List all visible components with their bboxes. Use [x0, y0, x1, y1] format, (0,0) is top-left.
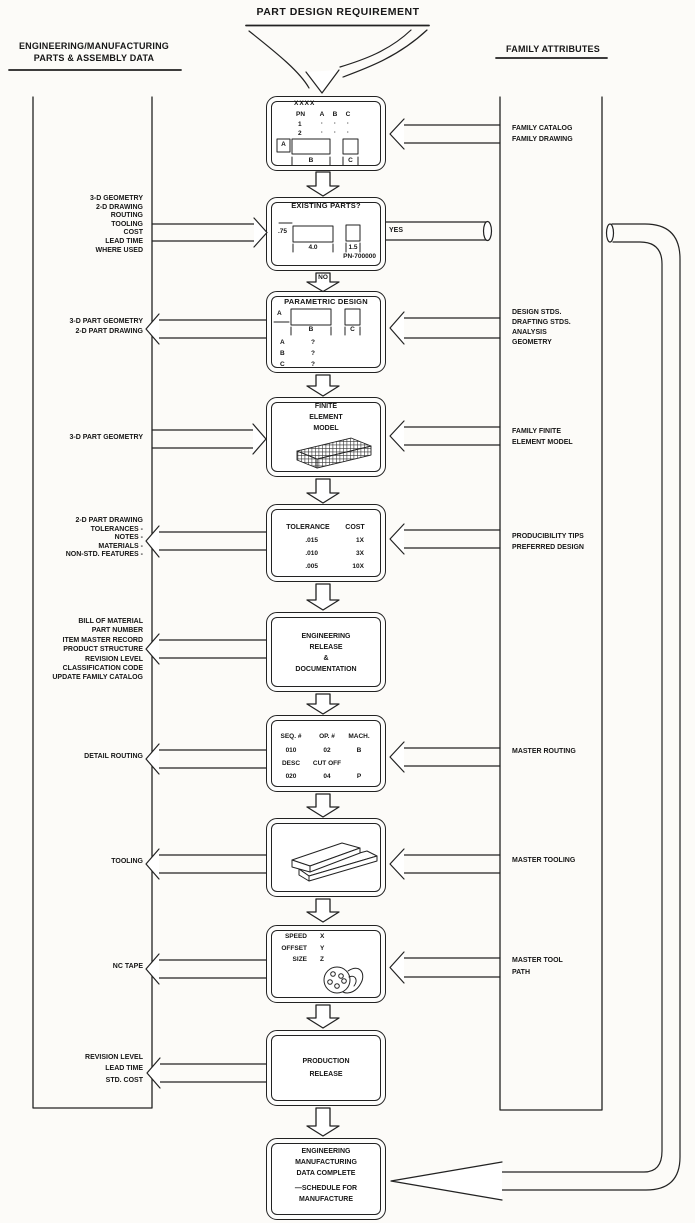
label-line: BILL OF MATERIAL: [33, 617, 143, 626]
routing-cell: 010: [272, 747, 310, 754]
arrow-left-icon: [390, 421, 404, 451]
label-line: FAMILY FINITE: [512, 427, 602, 438]
yes-feedback-loop: [386, 222, 680, 1201]
label-line: WHERE USED: [33, 247, 143, 256]
label-line: ANALYSIS: [512, 328, 602, 338]
arrow-left-icon: [147, 1058, 160, 1088]
label-line: 2-D PART DRAWING: [33, 327, 143, 337]
fem-line: ELEMENT: [266, 414, 386, 422]
label-line: PRODUCT STRUCTURE: [33, 645, 143, 654]
label-line: MASTER ROUTING: [512, 748, 602, 755]
down-arrow-icon: [307, 694, 339, 714]
label-line: DRAFTING STDS.: [512, 318, 602, 328]
flowchart-canvas: PART DESIGN REQUIREMENT ENGINEERING/MANU…: [0, 0, 695, 1223]
label-line: DETAIL ROUTING: [33, 753, 143, 760]
label-line: DESIGN STDS.: [512, 308, 602, 318]
catalog-col-pn: PN: [296, 111, 305, 118]
diagram-line-art: [0, 0, 695, 1223]
arrow-left-icon: [390, 312, 404, 344]
label-line: NOTES -: [33, 534, 143, 543]
cost-value: 1X: [338, 537, 364, 544]
dim-label-c: C: [345, 326, 360, 333]
arrow-right-icon: [254, 218, 267, 247]
eng-release-line: RELEASE: [266, 644, 386, 652]
label-line: ITEM MASTER RECORD: [33, 636, 143, 645]
label-line: STD. COST: [33, 1075, 143, 1086]
dim-label-a: A: [277, 310, 282, 317]
label-line: MATERIALS -: [33, 543, 143, 552]
tolerance-header: TOLERANCE: [278, 524, 338, 532]
down-arrow-icon: [307, 899, 339, 922]
label-line: CLASSIFICATION CODE: [33, 664, 143, 673]
label-line: LEAD TIME: [33, 238, 143, 247]
cost-header: COST: [340, 524, 370, 532]
label-line: 2-D DRAWING: [33, 204, 143, 213]
nc-param-label: SIZE: [267, 956, 307, 963]
label-line: COST: [33, 229, 143, 238]
label-line: MASTER TOOL: [512, 955, 602, 967]
label-line: PART NUMBER: [33, 626, 143, 635]
catalog-dim-b: B: [303, 157, 319, 164]
catalog-col-c: C: [343, 111, 353, 118]
catalog-row-cell: 2: [298, 130, 302, 137]
nc-param-label: SPEED: [267, 933, 307, 940]
tooling-drawing: [292, 843, 377, 881]
arrow-right-icon: [253, 424, 266, 454]
catalog-row-cell: ·: [343, 129, 353, 136]
part-design-funnel-arrow: [249, 30, 427, 93]
yes-branch-label: YES: [389, 227, 403, 235]
label-line: TOOLING: [33, 221, 143, 230]
no-branch-label: NO: [314, 274, 332, 281]
label-line: PATH: [512, 967, 602, 979]
down-arrow-icon: [307, 172, 339, 196]
routing-cell: 020: [272, 773, 310, 780]
left-label-group-tolerance: 2-D PART DRAWING TOLERANCES - NOTES - MA…: [33, 517, 143, 560]
param-value: ?: [311, 361, 315, 368]
tolerance-value: .010: [280, 550, 318, 557]
param-name: B: [280, 350, 285, 357]
left-label-group-eng-release: BILL OF MATERIAL PART NUMBER ITEM MASTER…: [33, 617, 143, 683]
left-data-arrows: [146, 218, 267, 1088]
arrow-left-icon: [390, 524, 404, 554]
label-line: NON-STD. FEATURES -: [33, 551, 143, 560]
nc-param-axis: X: [320, 933, 324, 940]
down-arrow-icon: [307, 584, 339, 610]
label-line: REVISION LEVEL: [33, 1052, 143, 1063]
left-label-group-production: REVISION LEVEL LEAD TIME STD. COST: [33, 1052, 143, 1086]
down-arrow-icon: [307, 375, 339, 396]
label-line: PRODUCIBILITY TIPS: [512, 532, 602, 543]
label-line: GEOMETRY: [512, 338, 602, 348]
arrow-left-icon: [390, 119, 404, 149]
left-label-group-routing: DETAIL ROUTING: [33, 753, 143, 760]
production-release-line: RELEASE: [266, 1071, 386, 1079]
catalog-row-cell: ·: [317, 129, 327, 136]
dim-value: 4.0: [295, 244, 331, 251]
routing-cell: CUT OFF: [307, 760, 347, 767]
tolerance-value: .015: [280, 537, 318, 544]
catalog-code: XXXX: [294, 100, 315, 107]
tolerance-value: .005: [280, 563, 318, 570]
label-line: 2-D PART DRAWING: [33, 517, 143, 526]
left-label-group-nc-tape: NC TAPE: [33, 963, 143, 970]
arrow-left-icon: [390, 742, 404, 772]
routing-cell: P: [340, 773, 378, 780]
label-line: ELEMENT MODEL: [512, 438, 602, 449]
label-line: PREFERRED DESIGN: [512, 543, 602, 554]
eng-release-line: DOCUMENTATION: [266, 666, 386, 674]
param-name: A: [280, 339, 285, 346]
catalog-row-cell: ·: [330, 120, 340, 127]
right-label-group-master-routing: MASTER ROUTING: [512, 748, 602, 755]
routing-header: MACH.: [340, 733, 378, 740]
label-line: FAMILY CATALOG: [512, 124, 602, 135]
dim-label-b: B: [303, 326, 319, 333]
fem-line: MODEL: [266, 425, 386, 433]
right-label-group-master-tooling: MASTER TOOLING: [512, 857, 602, 864]
right-label-group-catalog: FAMILY CATALOG FAMILY DRAWING: [512, 124, 602, 145]
arrow-left-icon: [391, 1162, 502, 1200]
down-arrow-icon: [307, 1108, 339, 1136]
arrow-left-icon: [390, 849, 404, 879]
catalog-row-cell: 1: [298, 121, 302, 128]
right-column-header: FAMILY ATTRIBUTES: [494, 44, 612, 54]
left-label-group-parametric: 3-D PART GEOMETRY 2-D PART DRAWING: [33, 317, 143, 337]
left-header-line: ENGINEERING/MANUFACTURING: [8, 41, 180, 53]
catalog-col-a: A: [317, 111, 327, 118]
label-line: MASTER TOOLING: [512, 857, 602, 864]
left-label-group-fem: 3-D PART GEOMETRY: [33, 434, 143, 441]
arrow-left-icon: [390, 952, 404, 983]
data-complete-line: DATA COMPLETE: [266, 1170, 386, 1178]
label-line: 3-D PART GEOMETRY: [33, 317, 143, 327]
catalog-dim-c: C: [343, 157, 358, 164]
dim-value: 1.5: [346, 244, 360, 251]
left-label-group-tooling: TOOLING: [33, 858, 143, 865]
fem-mesh-drawing: [297, 438, 371, 468]
routing-cell: B: [340, 747, 378, 754]
param-name: C: [280, 361, 285, 368]
part-number: PN-700000: [328, 253, 376, 260]
param-value: ?: [311, 339, 315, 346]
eng-release-line: &: [266, 655, 386, 663]
right-label-group-producibility: PRODUCIBILITY TIPS PREFERRED DESIGN: [512, 532, 602, 553]
production-release-line: PRODUCTION: [266, 1058, 386, 1066]
data-complete-line: ENGINEERING: [266, 1148, 386, 1156]
right-label-group-master-tool-path: MASTER TOOL PATH: [512, 955, 602, 979]
tape-reel-drawing: [324, 967, 363, 993]
label-line: LEAD TIME: [33, 1063, 143, 1074]
data-complete-line: MANUFACTURING: [266, 1159, 386, 1167]
catalog-row-cell: ·: [343, 120, 353, 127]
label-line: ROUTING: [33, 212, 143, 221]
data-complete-line: MANUFACTURE: [266, 1196, 386, 1204]
label-line: TOLERANCES -: [33, 526, 143, 535]
label-line: 3-D PART GEOMETRY: [33, 434, 143, 441]
label-line: UPDATE FAMILY CATALOG: [33, 673, 143, 682]
label-line: REVISION LEVEL: [33, 655, 143, 664]
routing-cell: DESC: [272, 760, 310, 767]
param-value: ?: [311, 350, 315, 357]
nc-param-label: OFFSET: [267, 945, 307, 952]
catalog-col-b: B: [330, 111, 340, 118]
cost-value: 3X: [338, 550, 364, 557]
left-label-group-existing-parts: 3-D GEOMETRY 2-D DRAWING ROUTING TOOLING…: [33, 195, 143, 255]
dim-value: .75: [278, 228, 287, 235]
existing-parts-title: EXISTING PARTS?: [266, 202, 386, 211]
fem-line: FINITE: [266, 403, 386, 411]
label-line: TOOLING: [33, 858, 143, 865]
nc-param-axis: Z: [320, 956, 324, 963]
label-line: 3-D GEOMETRY: [33, 195, 143, 204]
down-arrow-icon: [307, 479, 339, 503]
left-column-header: ENGINEERING/MANUFACTURING PARTS & ASSEMB…: [8, 41, 180, 64]
catalog-row-cell: ·: [317, 120, 327, 127]
data-complete-line: —SCHEDULE FOR: [266, 1185, 386, 1193]
routing-header: SEQ. #: [272, 733, 310, 740]
down-arrow-icon: [307, 794, 339, 817]
family-attribute-arrows: [390, 119, 500, 983]
down-arrow-icon: [307, 1005, 339, 1028]
catalog-dim-a: A: [277, 141, 290, 148]
label-line: FAMILY DRAWING: [512, 135, 602, 146]
right-label-group-design-stds: DESIGN STDS. DRAFTING STDS. ANALYSIS GEO…: [512, 308, 602, 348]
right-label-group-family-fem: FAMILY FINITE ELEMENT MODEL: [512, 427, 602, 448]
cost-value: 10X: [338, 563, 364, 570]
eng-release-line: ENGINEERING: [266, 633, 386, 641]
parametric-title: PARAMETRIC DESIGN: [266, 298, 386, 307]
nc-param-axis: Y: [320, 945, 324, 952]
page-title: PART DESIGN REQUIREMENT: [238, 6, 438, 18]
catalog-row-cell: ·: [330, 129, 340, 136]
label-line: NC TAPE: [33, 963, 143, 970]
left-header-line: PARTS & ASSEMBLY DATA: [8, 53, 180, 65]
